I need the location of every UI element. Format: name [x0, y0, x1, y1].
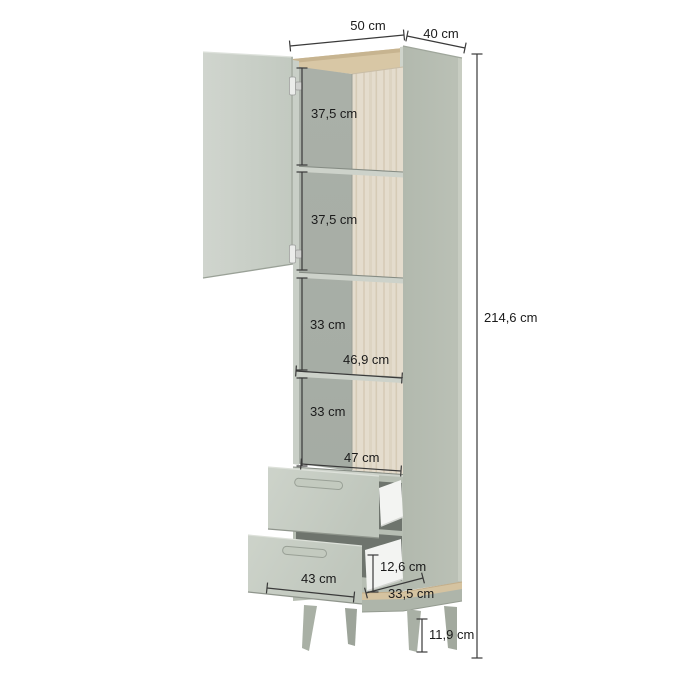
label-section3: 33 cm [310, 317, 345, 332]
interior-back-panel [352, 67, 403, 477]
right-panel-back-edge [458, 57, 462, 582]
label-drawer-front-width: 43 cm [301, 571, 336, 586]
label-total-height: 214,6 cm [484, 310, 537, 325]
door [203, 52, 303, 278]
dim-interior-width-tick-start [296, 366, 297, 377]
leg-front-left [302, 605, 317, 651]
label-top-width: 50 cm [350, 18, 385, 33]
label-leg-height: 11,9 cm [429, 627, 474, 642]
dim-top-width-tick-end [403, 30, 404, 41]
label-bottom-interior-width: 47 cm [344, 450, 379, 465]
dim-top-width-tick-start [289, 41, 290, 52]
label-interior-width: 46,9 cm [343, 352, 389, 367]
label-top-depth: 40 cm [423, 26, 458, 41]
upper-drawer-front [268, 467, 379, 538]
label-section1: 37,5 cm [311, 106, 357, 121]
dim-top-width [290, 35, 404, 46]
leg-back-left [345, 608, 357, 646]
cabinet-diagram-canvas: 50 cm 40 cm 37,5 cm 37,5 cm 33 cm 46,9 c… [0, 0, 700, 700]
dim-interior-width-tick-end [402, 373, 403, 384]
label-drawer-depth: 33,5 cm [388, 586, 434, 601]
right-side-panel [403, 46, 462, 591]
dim-bottom-interior-width-tick-start [301, 459, 302, 470]
furniture-dimension-diagram: 50 cm 40 cm 37,5 cm 37,5 cm 33 cm 46,9 c… [0, 0, 700, 700]
label-section4: 33 cm [310, 404, 345, 419]
label-drawer-inner-height: 12,6 cm [380, 559, 426, 574]
door-panel [203, 52, 293, 278]
label-section2: 37,5 cm [311, 212, 357, 227]
dim-bottom-interior-width-tick-end [401, 466, 402, 477]
leg-front-right [407, 609, 421, 652]
